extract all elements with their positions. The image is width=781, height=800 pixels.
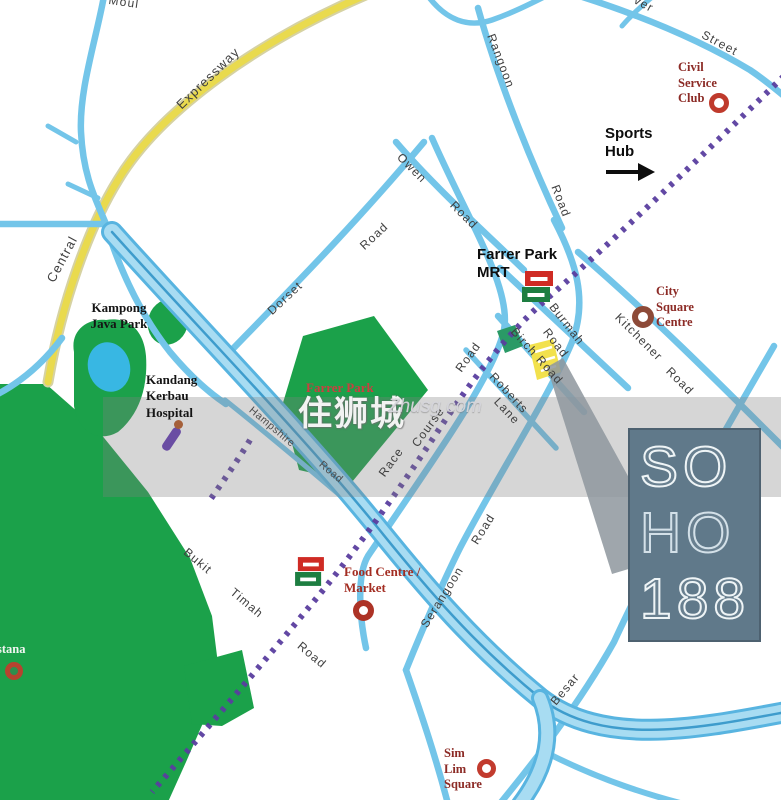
- soho-188-logo: SO HO 188: [628, 428, 761, 642]
- sports-hub-arrow-line: [606, 170, 639, 174]
- label-city-square-centre: City Square Centre: [656, 284, 694, 331]
- park-areas: [0, 294, 428, 800]
- sports-hub-arrow-icon: [638, 163, 655, 181]
- hospital-marker-dot-icon: [174, 420, 183, 429]
- label-sports-hub: Sports Hub: [605, 125, 653, 160]
- city-square-centre-icon: [632, 306, 654, 328]
- civil-service-club-icon: [709, 93, 729, 113]
- label-kandang-kerbau-hospital: Kandang Kerbau Hospital: [146, 372, 197, 421]
- road-dorset: [224, 142, 424, 358]
- istana-icon: [5, 662, 23, 680]
- road-stub-1: [48, 126, 76, 142]
- road-top-arc: [428, 0, 546, 23]
- logo-line-1: SO: [640, 434, 759, 500]
- road-street: [560, 0, 781, 96]
- food-centre-market-icon: [353, 600, 374, 621]
- logo-line-3: 188: [640, 566, 759, 632]
- logo-line-2: HO: [640, 500, 759, 566]
- watermark-latin: Zhusg.com: [388, 396, 482, 418]
- label-istana-partial: stana: [0, 642, 25, 658]
- sim-lim-square-icon: [477, 759, 496, 778]
- little-india-mrt-station-icon: [295, 557, 324, 586]
- road-serangoon-lower: [406, 670, 448, 800]
- road-bottom-right: [545, 752, 700, 800]
- label-kampong-java-park: Kampong Java Park: [84, 300, 154, 333]
- label-food-centre-market: Food Centre / Market: [344, 564, 420, 597]
- map-canvas: Moul Expressway Central Rangoon Road ver…: [0, 0, 781, 800]
- farrer-park-mrt-station-icon: [522, 271, 553, 302]
